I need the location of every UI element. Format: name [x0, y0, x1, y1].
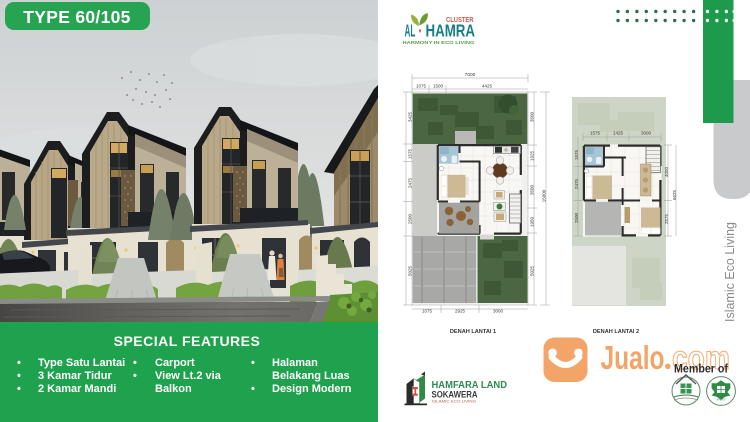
svg-text:2925: 2925: [455, 309, 466, 314]
svg-text:•: •: [251, 383, 255, 395]
svg-text:Islamic Eco Living: Islamic Eco Living: [723, 222, 737, 322]
svg-text:2475: 2475: [574, 178, 579, 189]
svg-text:2500: 2500: [408, 213, 413, 224]
svg-text:Belakang Luas: Belakang Luas: [272, 370, 350, 382]
svg-text:ISLAMIC ECO LIVING: ISLAMIC ECO LIVING: [432, 400, 477, 404]
svg-text:Jualo: Jualo: [601, 339, 665, 376]
svg-text:4050: 4050: [664, 166, 669, 177]
svg-text:1075: 1075: [422, 309, 433, 314]
svg-text:1075: 1075: [416, 84, 427, 89]
svg-text:1950: 1950: [530, 216, 535, 227]
svg-text:6625: 6625: [672, 189, 677, 200]
svg-text:2 Kamar Mandi: 2 Kamar Mandi: [38, 383, 116, 395]
svg-text:•: •: [133, 370, 137, 382]
svg-text:2500: 2500: [574, 212, 579, 223]
svg-text:•: •: [17, 370, 21, 382]
svg-text:4425: 4425: [482, 84, 493, 89]
svg-text:3000: 3000: [493, 309, 504, 314]
svg-text:1575: 1575: [574, 149, 579, 160]
svg-text:1500: 1500: [433, 84, 444, 89]
svg-text:15000: 15000: [542, 189, 547, 202]
svg-text:1575: 1575: [408, 148, 413, 159]
svg-text:3500: 3500: [530, 184, 535, 195]
svg-text:•: •: [17, 383, 21, 395]
svg-text:DENAH LANTAI 2: DENAH LANTAI 2: [593, 329, 639, 335]
svg-text:•: •: [251, 357, 255, 369]
svg-text:•: •: [133, 357, 137, 369]
svg-text:APERSI: APERSI: [717, 399, 726, 402]
svg-text:Type Satu Lantai: Type Satu Lantai: [38, 357, 125, 369]
svg-text:1425: 1425: [613, 131, 624, 136]
svg-text:3000: 3000: [641, 131, 652, 136]
svg-text:5025: 5025: [408, 265, 413, 276]
svg-text:Design Modern: Design Modern: [272, 383, 352, 395]
svg-text:Member of: Member of: [674, 364, 728, 376]
svg-text:HAMRA: HAMRA: [426, 21, 476, 41]
svg-text:Carport: Carport: [155, 357, 195, 369]
svg-text:5025: 5025: [530, 265, 535, 276]
svg-text:3 Kamar Tidur: 3 Kamar Tidur: [38, 370, 112, 382]
svg-text:1575: 1575: [590, 131, 601, 136]
svg-text:DENAH LANTAI 1: DENAH LANTAI 1: [450, 329, 496, 335]
svg-text:•: •: [17, 357, 21, 369]
svg-text:Balkon: Balkon: [155, 383, 192, 395]
svg-text:3425: 3425: [408, 111, 413, 122]
svg-text:TYPE 60/105: TYPE 60/105: [23, 7, 130, 27]
svg-text:2575: 2575: [664, 213, 669, 224]
svg-text:7000: 7000: [465, 72, 476, 78]
svg-text:2475: 2475: [408, 177, 413, 188]
svg-text:SPECIAL FEATURES: SPECIAL FEATURES: [114, 333, 261, 349]
svg-text:1925: 1925: [530, 150, 535, 161]
svg-text:3500: 3500: [530, 111, 535, 122]
svg-text:Halaman: Halaman: [272, 357, 318, 369]
svg-text:AL: AL: [405, 21, 416, 41]
svg-text:HARMONY IN ECO LIVING: HARMONY IN ECO LIVING: [403, 40, 476, 45]
svg-text:View Lt.2 via: View Lt.2 via: [155, 370, 222, 382]
